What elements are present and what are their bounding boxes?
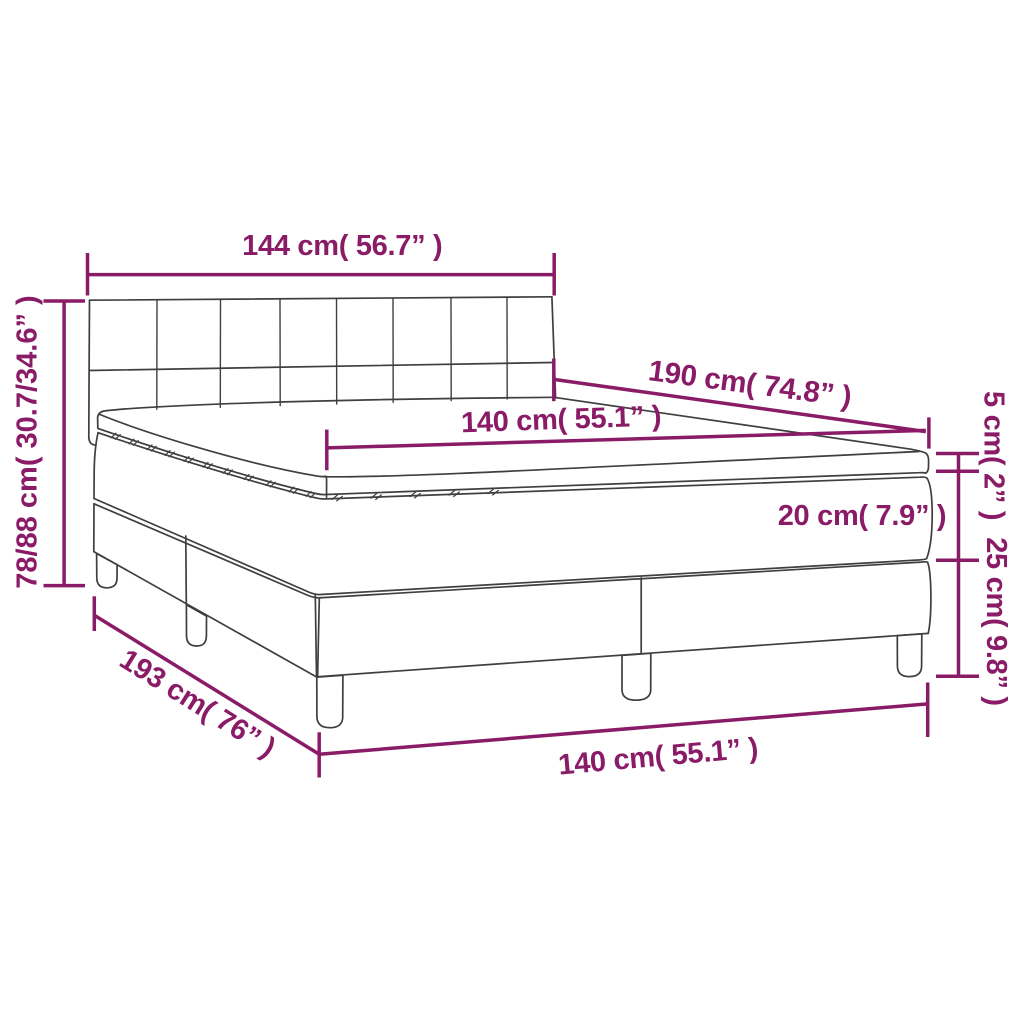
svg-text:5 cm( 2” ): 5 cm( 2” ) bbox=[978, 391, 1010, 520]
svg-text:140 cm( 55.1” ): 140 cm( 55.1” ) bbox=[460, 400, 661, 439]
svg-text:140 cm( 55.1” ): 140 cm( 55.1” ) bbox=[557, 732, 759, 781]
svg-text:78/88 cm( 30.7/34.6” ): 78/88 cm( 30.7/34.6” ) bbox=[11, 295, 43, 588]
svg-text:20 cm( 7.9” ): 20 cm( 7.9” ) bbox=[778, 500, 947, 532]
svg-text:144 cm( 56.7” ): 144 cm( 56.7” ) bbox=[242, 230, 442, 262]
svg-text:193 cm( 76” ): 193 cm( 76” ) bbox=[114, 643, 281, 764]
svg-text:190 cm( 74.8” ): 190 cm( 74.8” ) bbox=[646, 354, 853, 413]
svg-text:25 cm( 9.8” ): 25 cm( 9.8” ) bbox=[980, 537, 1012, 706]
